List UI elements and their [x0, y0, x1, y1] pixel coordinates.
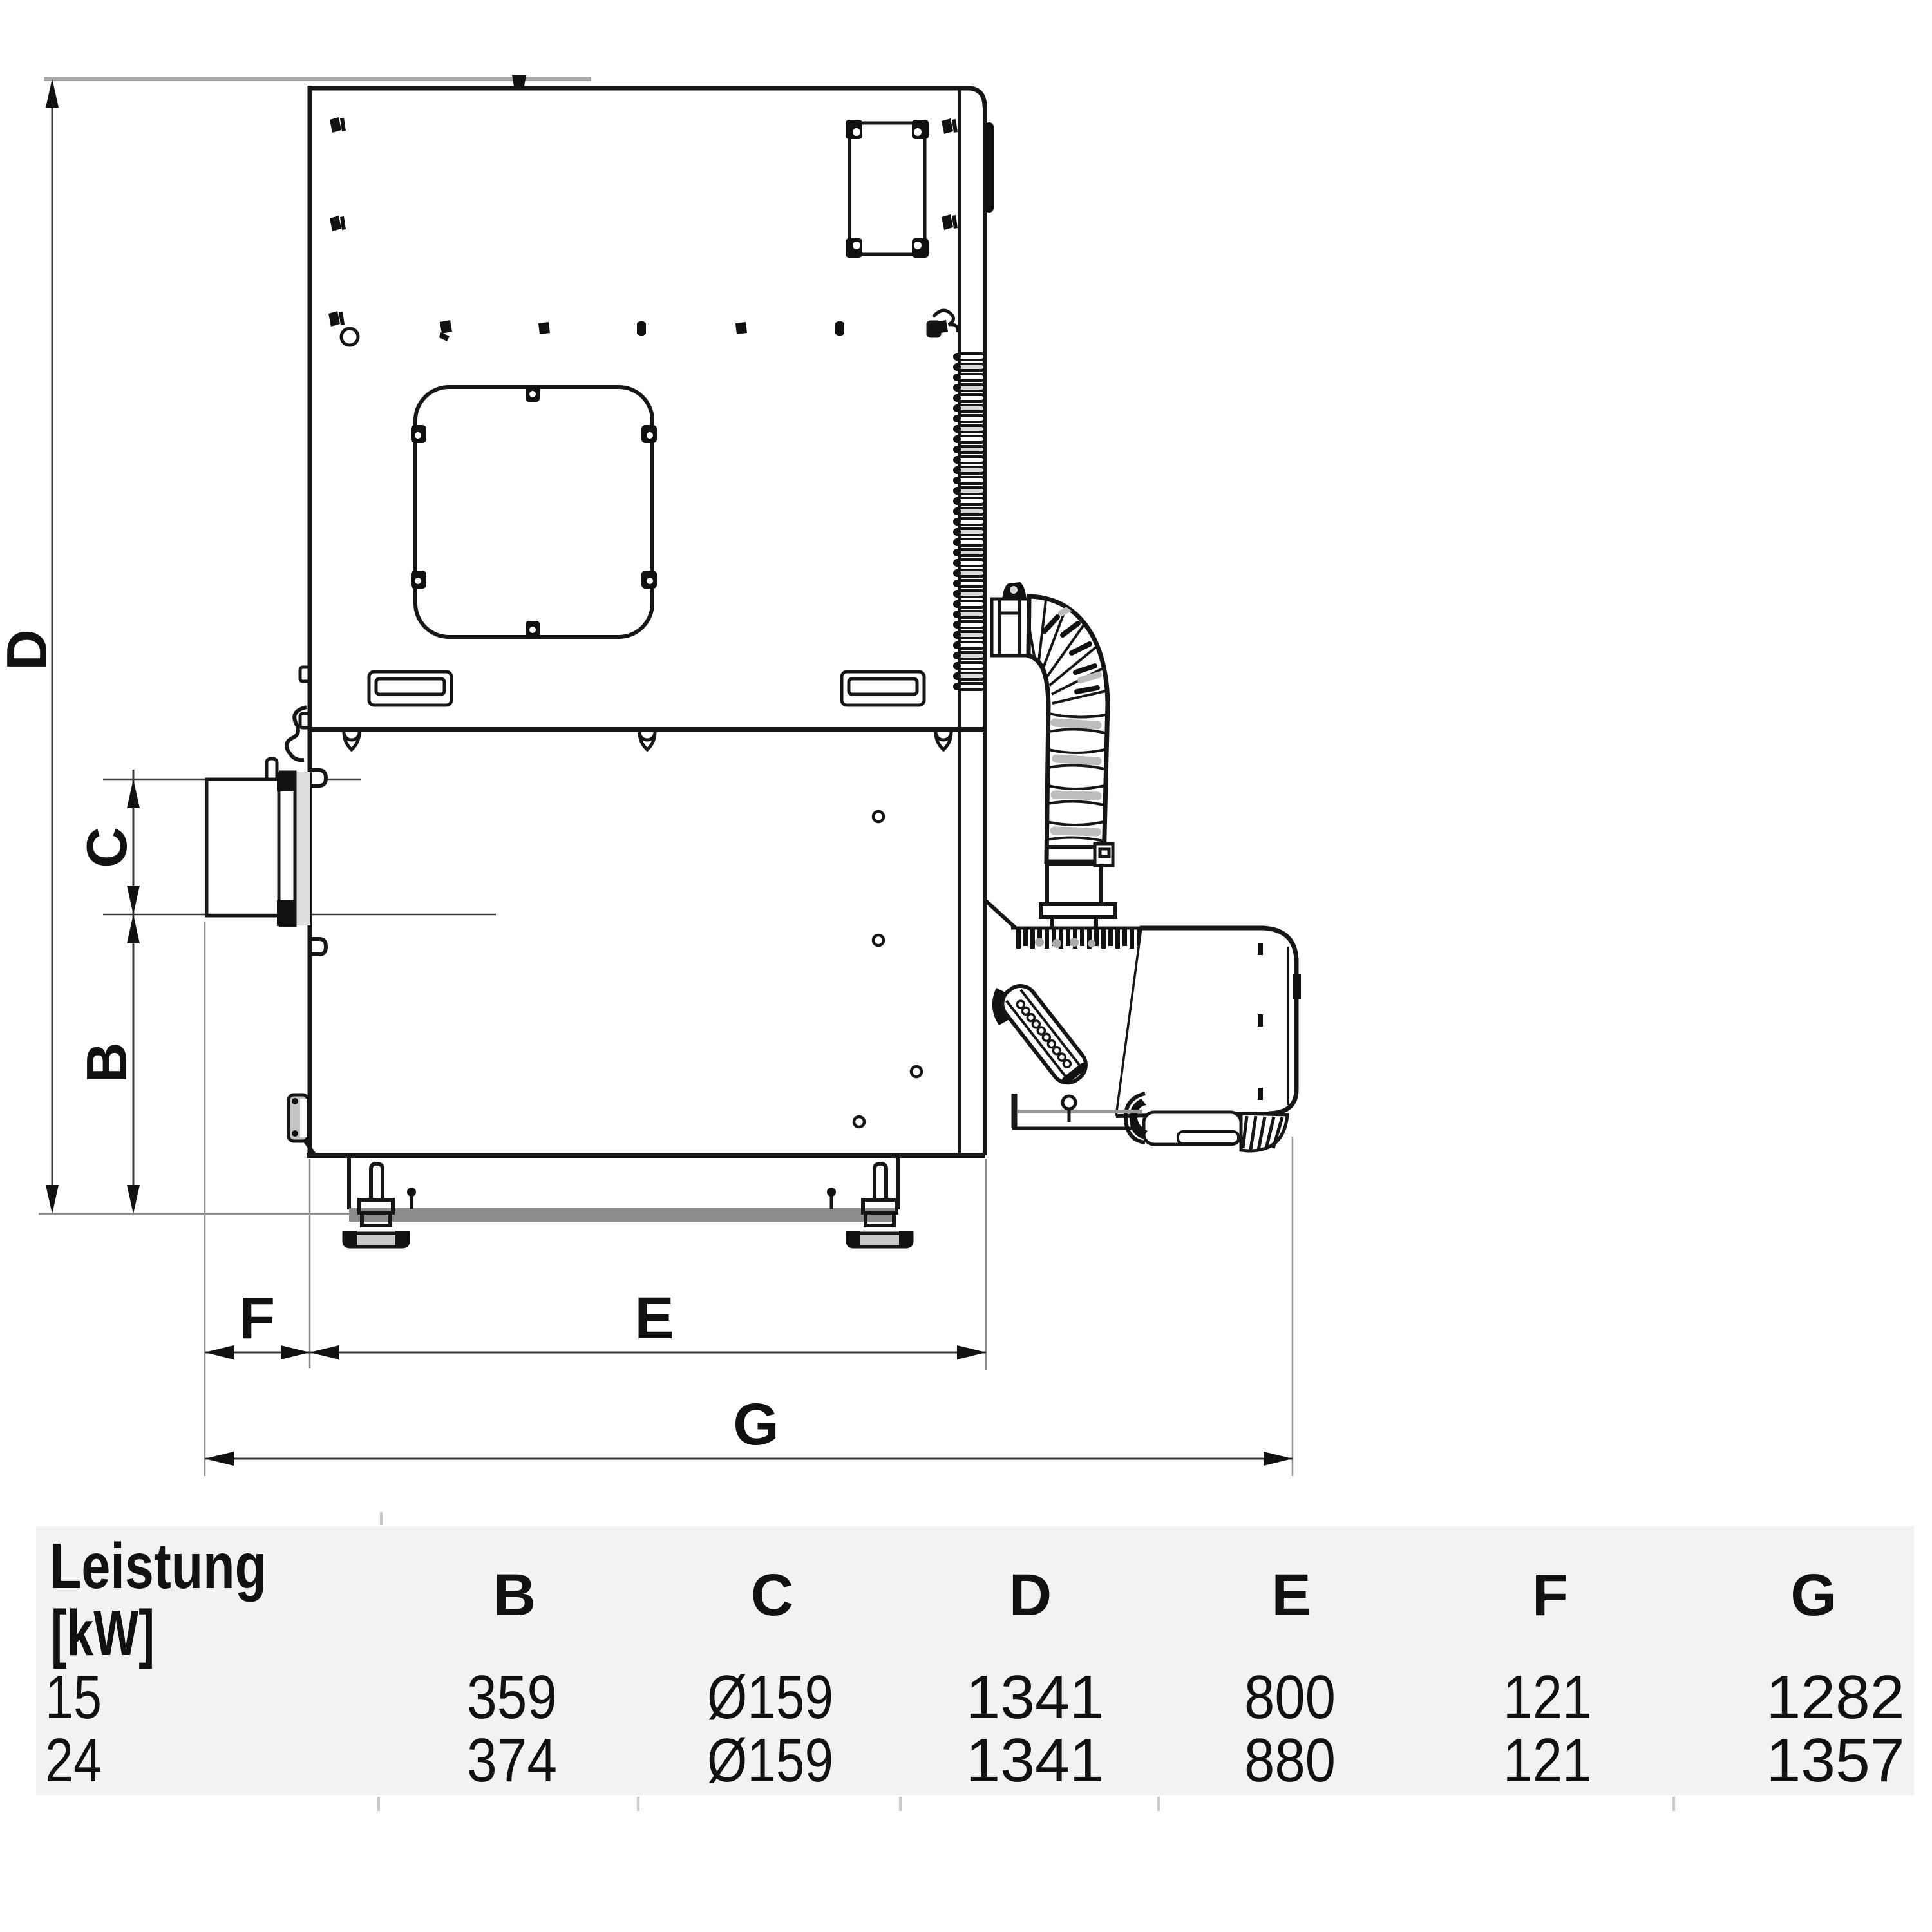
svg-text:G: G	[1790, 1562, 1837, 1628]
svg-text:Leistung: Leistung	[50, 1530, 267, 1602]
svg-text:374: 374	[467, 1726, 557, 1795]
svg-text:15: 15	[45, 1663, 102, 1732]
svg-text:B: B	[493, 1562, 536, 1628]
svg-text:880: 880	[1244, 1726, 1336, 1795]
svg-text:C: C	[751, 1562, 793, 1628]
svg-text:24: 24	[45, 1726, 102, 1795]
svg-text:121: 121	[1503, 1663, 1592, 1732]
svg-text:F: F	[1532, 1562, 1568, 1628]
svg-text:F: F	[239, 1285, 275, 1351]
svg-text:D: D	[1009, 1562, 1052, 1628]
svg-text:Ø159: Ø159	[707, 1663, 833, 1732]
svg-text:E: E	[1271, 1562, 1311, 1628]
svg-text:C: C	[75, 827, 138, 868]
svg-text:1282: 1282	[1766, 1663, 1905, 1732]
svg-text:G: G	[733, 1392, 779, 1457]
svg-text:E: E	[634, 1285, 674, 1351]
svg-text:359: 359	[467, 1663, 557, 1732]
svg-text:1341: 1341	[966, 1663, 1104, 1732]
svg-text:D: D	[0, 629, 59, 670]
svg-text:[kW]: [kW]	[51, 1597, 155, 1669]
svg-text:B: B	[75, 1042, 138, 1083]
svg-text:800: 800	[1244, 1663, 1336, 1732]
svg-text:121: 121	[1503, 1726, 1592, 1795]
svg-text:1341: 1341	[966, 1726, 1104, 1795]
svg-text:Ø159: Ø159	[707, 1726, 833, 1795]
svg-text:1357: 1357	[1766, 1726, 1905, 1795]
